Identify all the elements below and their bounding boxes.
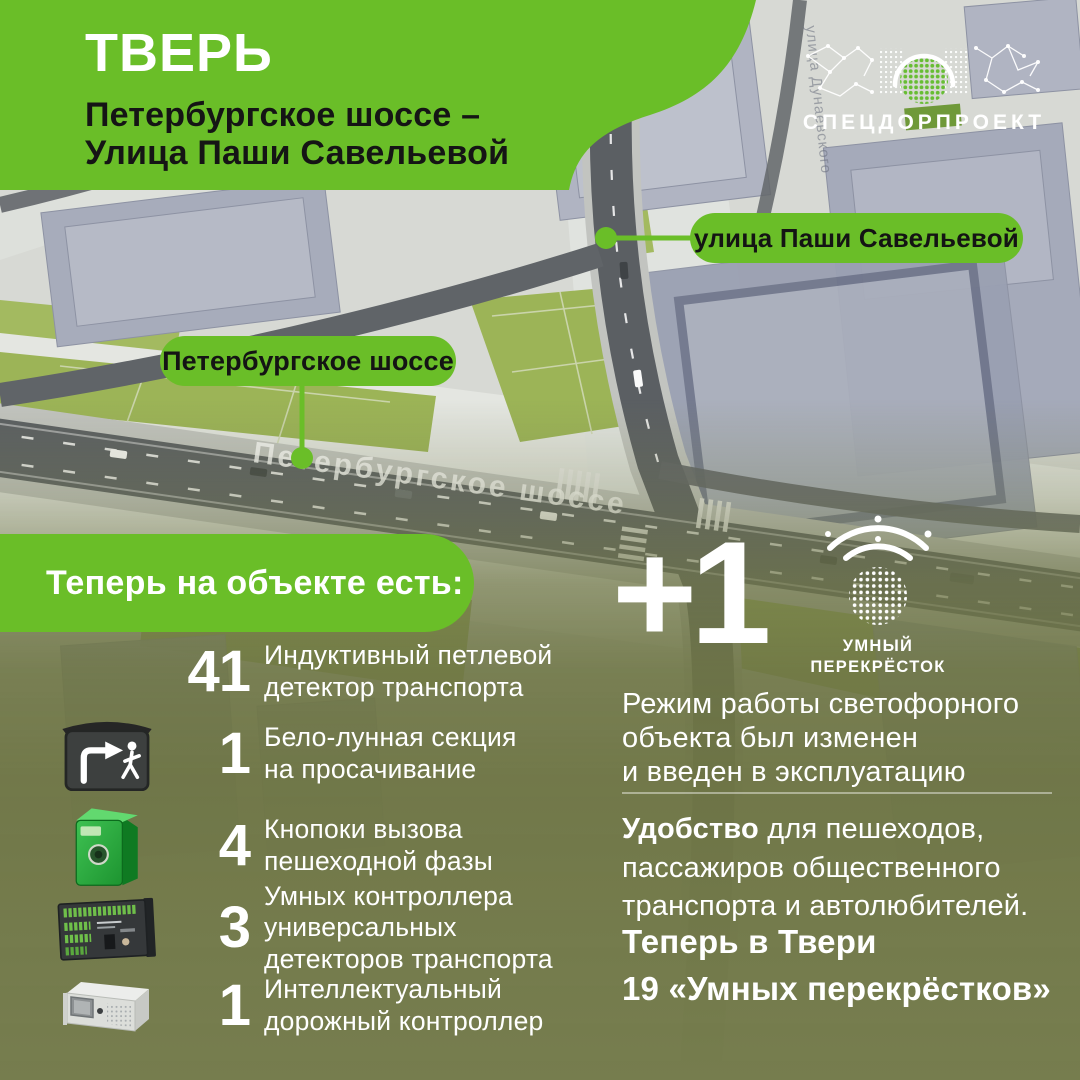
equipment-item-white-moon-section: 1 Бело-лунная секция на просачивание: [56, 706, 580, 802]
equipment-count: 41: [172, 643, 250, 701]
smart-intersection-badge: УМНЫЙ ПЕРЕКРЁСТОК: [792, 506, 964, 679]
equipment-label: Кнопоки вызова пешеходной фазы: [264, 814, 580, 877]
brand-logo-icon: [800, 36, 1048, 108]
city-total-text: Теперь в Твери 19 «Умных перекрёстков»: [622, 918, 1051, 1012]
section-banner: Теперь на объекте есть:: [0, 534, 474, 632]
peterburg-highway-connector: [288, 384, 316, 472]
section-banner-text: Теперь на объекте есть:: [46, 564, 464, 603]
mode-description: Режим работы светофорного объекта был из…: [622, 688, 1019, 790]
plus-one-counter: +1: [612, 520, 764, 666]
road-controller-icon: [59, 977, 155, 1035]
brand-logo-name: СПЕЦДОРПРОЕКТ: [800, 111, 1048, 135]
equipment-label: Бело-лунная секция на просачивание: [264, 722, 580, 785]
street-label-peterburg-text: Петербургское шоссе: [162, 346, 454, 377]
equipment-count: 1: [172, 977, 250, 1035]
equipment-count: 1: [172, 725, 250, 783]
page-title: ТВЕРЬ: [85, 26, 509, 80]
pasha-street-connector: [592, 222, 702, 254]
equipment-label: Индуктивный петлевой детектор транспорта: [264, 640, 580, 703]
header: ТВЕРЬ Петербургское шоссе – Улица Паши С…: [85, 26, 509, 172]
equipment-count: 3: [172, 899, 250, 957]
brand-logo: СПЕЦДОРПРОЕКТ: [800, 36, 1048, 135]
infographic-poster: Петербургское шоссе улица Дунаевского ТВ…: [0, 0, 1080, 1080]
street-label-pasha-savelyeva: улица Паши Савельевой: [690, 213, 1023, 263]
street-label-pasha-text: улица Паши Савельевой: [694, 223, 1019, 254]
equipment-item-road-controller: 1 Интеллектуальный дорожный контроллер: [56, 966, 580, 1046]
benefit-text: Удобство для пешеходов, пассажиров общес…: [622, 810, 1028, 926]
equipment-count: 4: [172, 817, 250, 875]
smart-intersection-caption: УМНЫЙ ПЕРЕКРЁСТОК: [792, 636, 964, 679]
divider-line: [622, 792, 1052, 794]
street-label-peterburgskoe-shosse: Петербургское шоссе: [160, 336, 456, 386]
equipment-label: Интеллектуальный дорожный контроллер: [264, 974, 580, 1037]
equipment-item-smart-controllers: 3 Умных контроллера универсальных детект…: [56, 876, 580, 980]
equipment-item-loop-detectors: 41 Индуктивный петлевой детектор транспо…: [56, 628, 580, 716]
pedestrian-section-icon: [57, 713, 157, 795]
equipment-label: Умных контроллера универсальных детектор…: [264, 881, 580, 976]
detector-controller-icon: [53, 890, 161, 966]
page-subtitle: Петербургское шоссе – Улица Паши Савелье…: [85, 96, 509, 172]
benefit-lead-word: Удобство: [622, 813, 759, 845]
smart-intersection-icon: [813, 506, 943, 634]
